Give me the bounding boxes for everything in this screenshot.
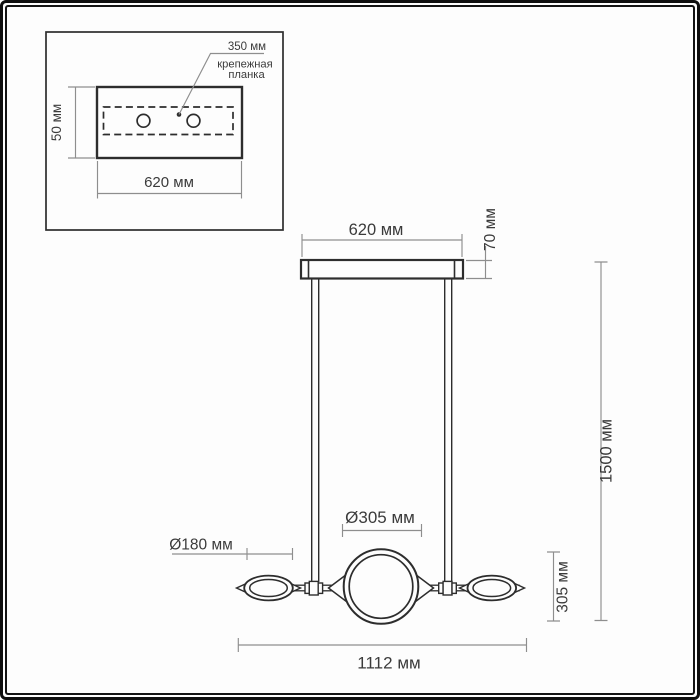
center-shade-diameter-dimension: Ø305 мм	[343, 508, 422, 537]
shade-section-height-dimension: 305 мм	[547, 552, 572, 621]
side-shade-diameter-dimension: Ø180 мм	[169, 537, 292, 561]
side-shade-right	[460, 576, 525, 601]
technical-drawing: 350 мм крепежная планка 50 мм 620 мм	[0, 0, 700, 700]
rod-clamp-left	[305, 581, 323, 595]
canopy-top-view	[97, 87, 242, 158]
diagram-canvas: 350 мм крепежная планка 50 мм 620 мм	[0, 0, 700, 700]
plate-width-dimension-label: 350 мм	[228, 41, 266, 53]
canopy-width-label: 620 мм	[349, 221, 404, 239]
overall-height-dimension: 1500 мм	[595, 262, 616, 621]
inset-depth-dimension: 50 мм	[49, 87, 95, 158]
inset-width-label: 620 мм	[144, 174, 194, 191]
inset-width-dimension: 620 мм	[98, 161, 242, 199]
rod-clamp-right	[439, 581, 457, 595]
overall-width-label: 1112 мм	[357, 654, 420, 673]
overall-height-label: 1500 мм	[598, 419, 616, 483]
ceiling-canopy	[301, 260, 463, 279]
canopy-height-dimension: 70 мм	[466, 208, 499, 278]
overall-width-dimension: 1112 мм	[238, 638, 526, 673]
pendant-front-view	[237, 260, 525, 624]
suspension-rod-right	[445, 279, 452, 583]
mounting-plate-label-line2: планка	[228, 69, 265, 81]
center-shade-outer-ring	[344, 549, 419, 624]
side-shade-left	[237, 576, 301, 601]
canopy-height-label: 70 мм	[482, 208, 499, 251]
side-shade-diameter-label: Ø180 мм	[169, 537, 233, 554]
canopy-width-dimension: 620 мм	[302, 221, 462, 257]
suspension-rod-left	[312, 279, 319, 583]
inset-depth-label: 50 мм	[49, 104, 64, 141]
shade-section-height-label: 305 мм	[555, 561, 572, 612]
mounting-plate-inset: 350 мм крепежная планка 50 мм 620 мм	[46, 32, 283, 230]
center-shade-diameter-label: Ø305 мм	[345, 508, 415, 527]
